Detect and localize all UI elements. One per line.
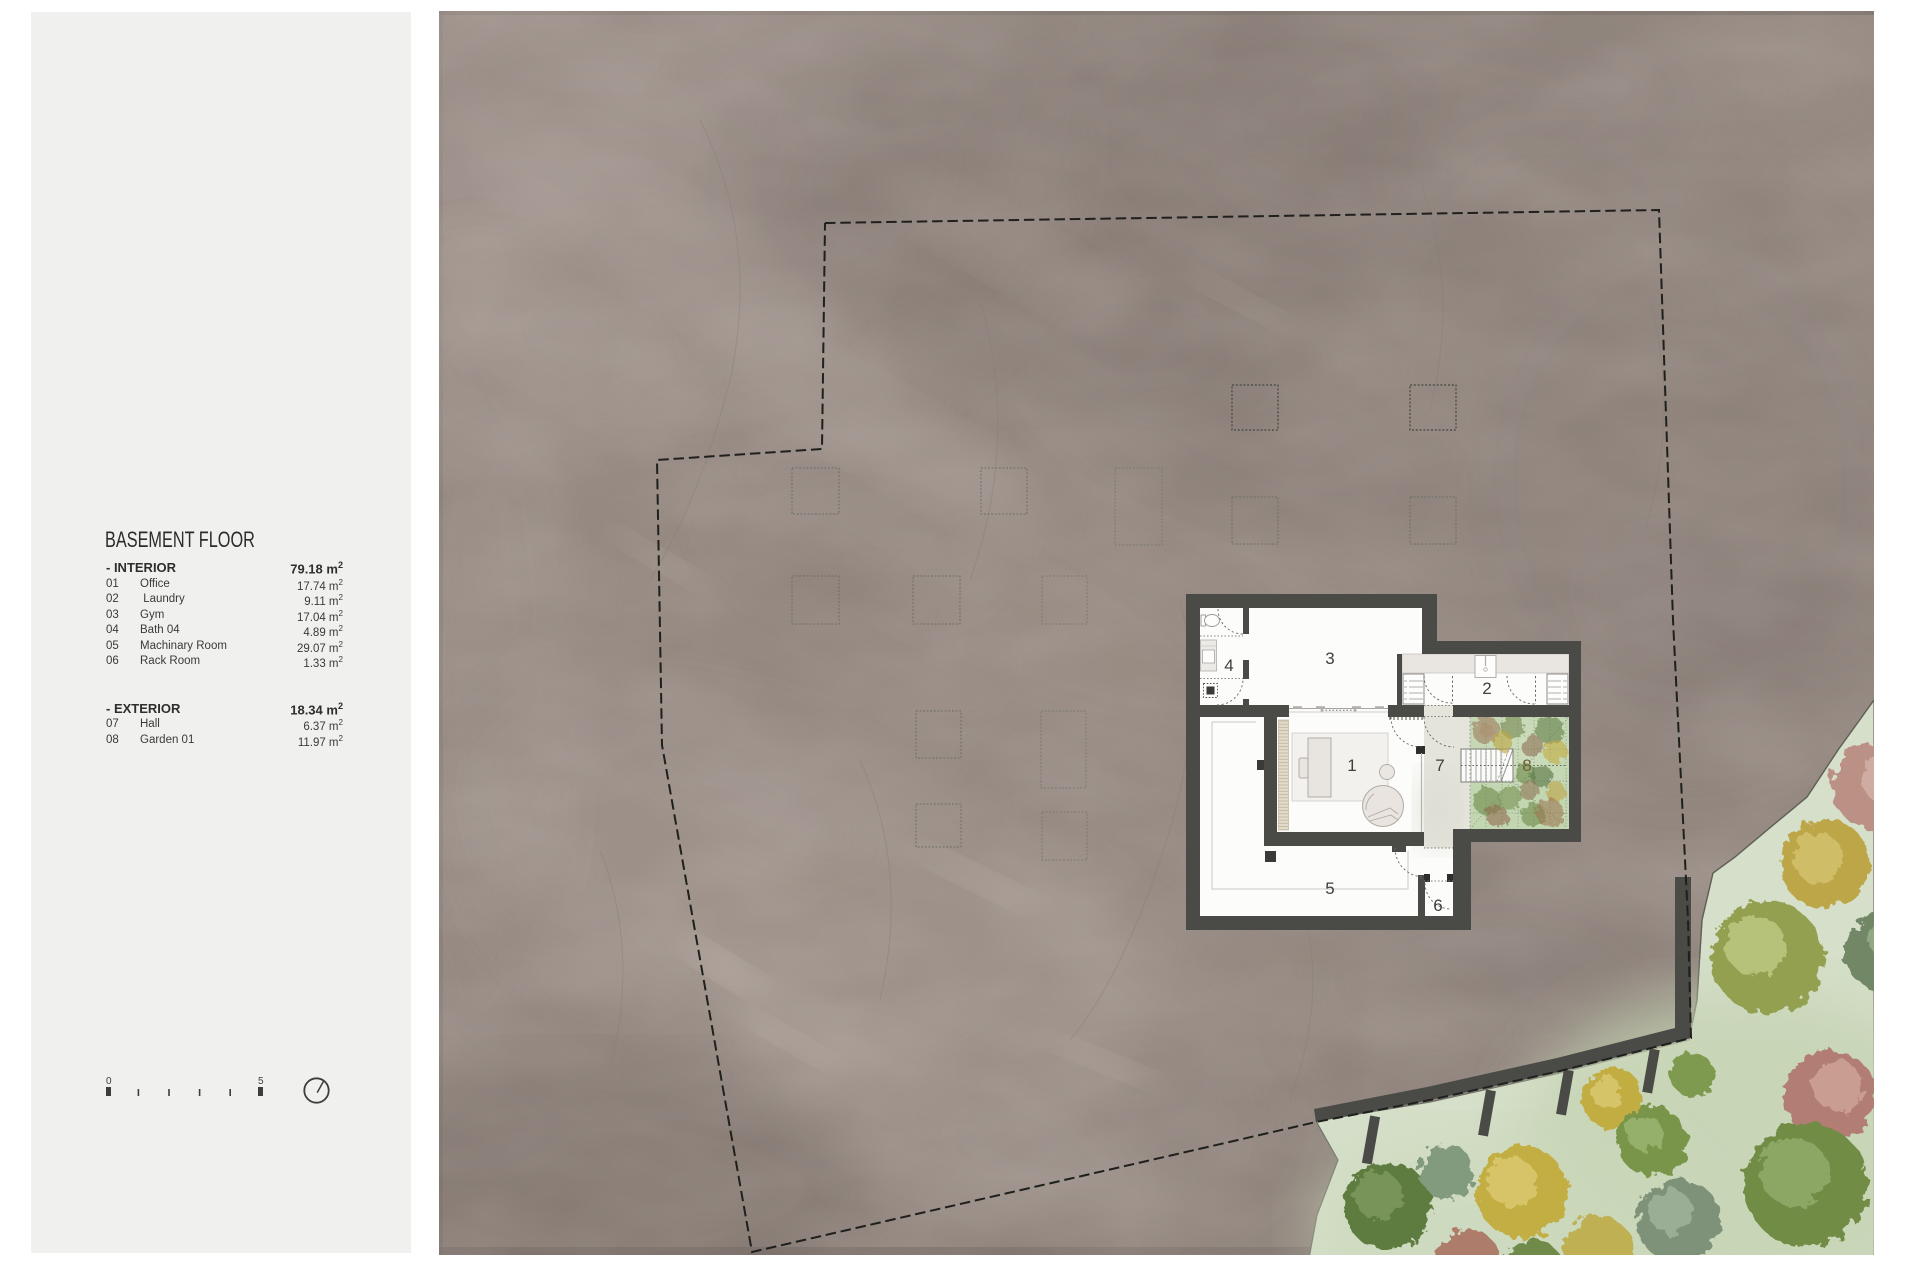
svg-text:6: 6 — [1433, 896, 1442, 915]
svg-text:2: 2 — [1482, 679, 1491, 698]
svg-text:5: 5 — [258, 1076, 264, 1087]
svg-text:4: 4 — [1224, 656, 1233, 675]
svg-text:8: 8 — [1522, 756, 1531, 775]
svg-text:7: 7 — [1435, 756, 1444, 775]
svg-text:5: 5 — [1325, 879, 1334, 898]
svg-text:0: 0 — [106, 1076, 112, 1087]
svg-text:3: 3 — [1325, 649, 1334, 668]
svg-text:1: 1 — [1347, 756, 1356, 775]
